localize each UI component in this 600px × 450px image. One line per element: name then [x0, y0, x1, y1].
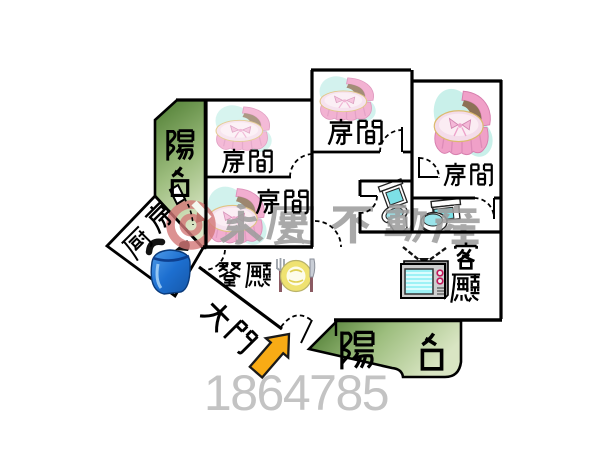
svg-text:1864785: 1864785 [204, 365, 388, 421]
